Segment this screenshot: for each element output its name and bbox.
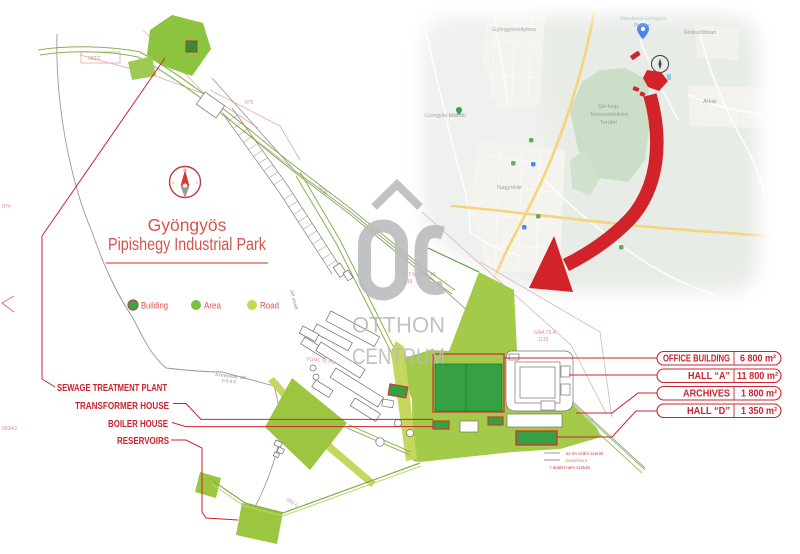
svg-text:Road: Road (260, 301, 279, 311)
svg-text:1 350 m²: 1 350 m² (741, 406, 778, 417)
svg-text:Nagyréde: Nagyréde (497, 185, 522, 191)
svg-text:093 6: 093 6 (285, 497, 299, 509)
svg-text:0934/2: 0934/2 (2, 426, 18, 432)
svg-text:Pipishegy Industrial Park: Pipishegy Industrial Park (108, 234, 266, 254)
svg-text:075: 075 (245, 100, 254, 106)
svg-text:HALL “A”: HALL “A” (688, 371, 730, 382)
svg-text:11 800 m²: 11 800 m² (737, 371, 779, 382)
svg-text:Sár-hegy: Sár-hegy (598, 104, 619, 110)
svg-text:GAA 76 R: GAA 76 R (534, 330, 557, 336)
svg-text:az én szám szerint: az én szám szerint (566, 451, 604, 456)
svg-text:Gyöngyös: Gyöngyös (148, 215, 227, 235)
svg-text:beépítésre: beépítésre (566, 458, 588, 463)
svg-text:Building: Building (141, 301, 168, 311)
svg-text:Természetvédelmi: Természetvédelmi (590, 112, 628, 118)
svg-text:1 800 m²: 1 800 m² (741, 389, 778, 400)
svg-text:Rédeszőlőmart: Rédeszőlőmart (684, 30, 716, 36)
svg-text:Gyöngyössolymos: Gyöngyössolymos (492, 27, 536, 33)
svg-text:Mátrafüredi-Gyöngyösi: Mátrafüredi-Gyöngyösi (620, 16, 666, 22)
svg-text:TRANSFORMER HOUSE: TRANSFORMER HOUSE (75, 401, 169, 412)
svg-text:CENTRUM: CENTRUM (352, 344, 445, 369)
svg-text:W: W (171, 180, 175, 185)
svg-text:OTTHON: OTTHON (352, 313, 445, 338)
svg-text:Jólt arkadt: Jólt arkadt (289, 289, 299, 311)
svg-text:Area: Area (204, 301, 221, 311)
svg-text:1115: 1115 (538, 337, 549, 343)
svg-text:HALL “D”: HALL “D” (687, 406, 730, 417)
svg-text:062/2: 062/2 (88, 56, 101, 62)
svg-text:RESERVOIRS: RESERVOIRS (117, 436, 169, 447)
svg-text:074: 074 (2, 204, 11, 210)
svg-text:Terület: Terület (600, 120, 617, 126)
svg-text:0 0 0 6: 0 0 0 6 (222, 378, 237, 384)
svg-text:OFFICE BUILDING: OFFICE BUILDING (663, 354, 730, 365)
svg-text:S: S (184, 193, 187, 198)
svg-text:SEWAGE TREATMENT PLANT: SEWAGE TREATMENT PLANT (57, 383, 167, 394)
svg-text:Atkár: Atkár (703, 99, 717, 105)
svg-text:ARCHIVES: ARCHIVES (683, 389, 730, 400)
svg-text:E: E (196, 180, 199, 185)
svg-text:BOILER HOUSE: BOILER HOUSE (108, 419, 168, 430)
svg-text:? épület nem szokás: ? épület nem szokás (549, 465, 591, 470)
svg-text:N: N (183, 168, 186, 173)
svg-text:6 800 m²: 6 800 m² (740, 354, 777, 365)
